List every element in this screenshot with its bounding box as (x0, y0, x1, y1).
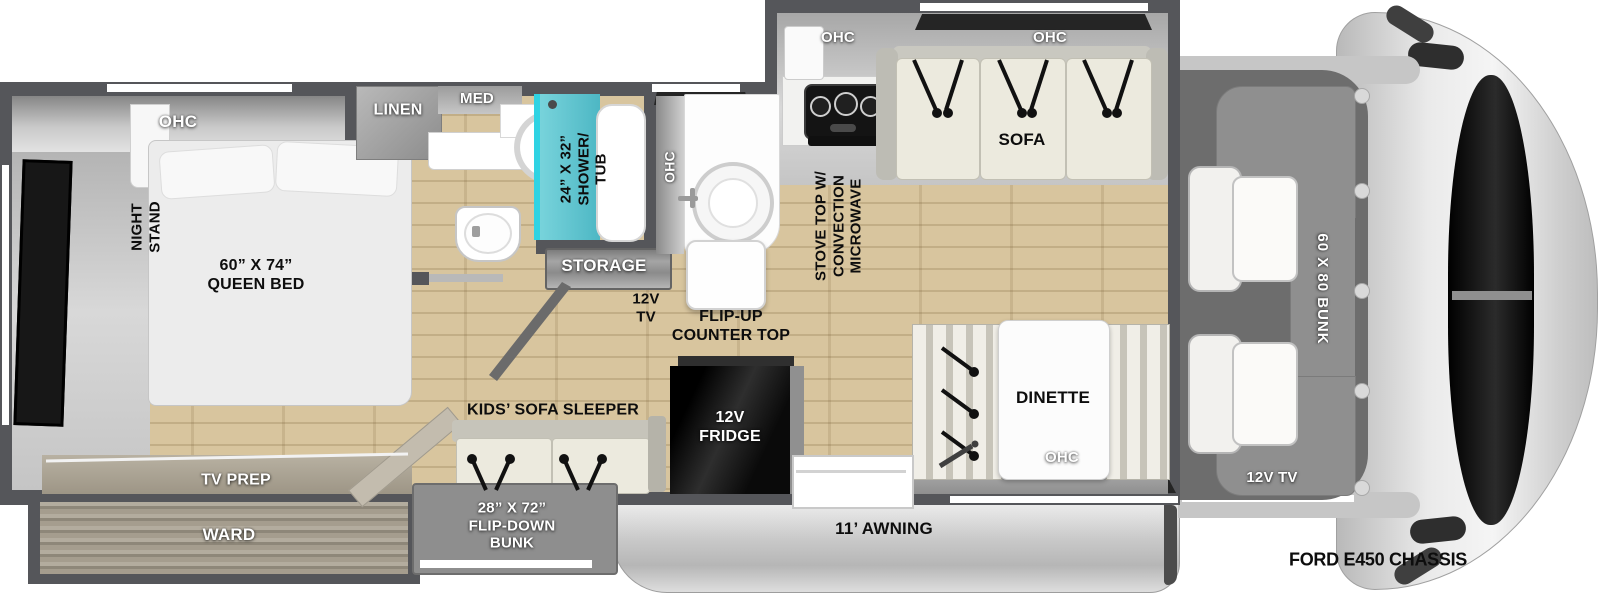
pillow (158, 144, 275, 200)
sofa-arm-left (876, 48, 898, 180)
tv-prep-label: TV PREP (201, 472, 271, 491)
rivet-icon (1354, 88, 1370, 104)
dinette-ohc-label: OHC (1045, 449, 1079, 467)
med-label: MED (460, 90, 494, 108)
bedroom-left-window (2, 165, 9, 425)
cab-seat-cushion-1 (1232, 176, 1298, 282)
ward-label: WARD (203, 525, 256, 545)
sofa-cushion (896, 58, 980, 180)
chassis-label: FORD E450 CHASSIS (1289, 549, 1467, 570)
night-stand-label: NIGHT STAND (128, 201, 163, 253)
shower-head-icon (548, 100, 557, 109)
cab-tv-label: 12V TV (1246, 469, 1297, 487)
kitchen-faucet-icon (690, 188, 695, 208)
dinette-label: DINETTE (1016, 388, 1090, 408)
dinette-bench-right (1106, 324, 1170, 480)
toilet-flush-icon (472, 226, 480, 237)
kids-sofa-label: KIDS’ SOFA SLEEPER (467, 402, 639, 421)
windshield-divider (1452, 291, 1532, 300)
sofa-cushion (980, 58, 1066, 180)
sofa-slide-wedge-icon (915, 14, 1152, 30)
stove-ohc-cabinet (784, 26, 824, 80)
tv-12v-label: 12V TV (632, 290, 659, 325)
burner-icon (834, 92, 858, 116)
stove-ohc-label: OHC (821, 29, 855, 47)
storage-label: STORAGE (561, 256, 646, 276)
shower-tub-label: 24” X 32” SHOWER/ TUB (557, 109, 610, 229)
bedroom-window (107, 84, 292, 92)
kitchen-sink-bowl (708, 178, 758, 228)
linen-label: LINEN (374, 102, 423, 121)
rivet-icon (1354, 183, 1370, 199)
awning (612, 503, 1180, 593)
sofa-label: SOFA (998, 130, 1045, 150)
rv-floorplan: OHC NIGHT STAND 60” X 74” QUEEN BED TV P… (0, 0, 1600, 601)
stove-control-icon (830, 124, 856, 132)
sofa-cushion (1066, 58, 1152, 180)
entry-step (792, 455, 914, 509)
sofa-ohc-label: OHC (1033, 29, 1067, 47)
kitchen-faucet-icon (678, 196, 698, 201)
awning-label: 11’ AWNING (835, 519, 933, 539)
bath-pocket-door (429, 274, 503, 282)
entry-step-edge (796, 470, 906, 473)
fridge-label: 12V FRIDGE (699, 409, 761, 447)
flip-down-bunk-trim (420, 560, 592, 568)
burner-icon (810, 96, 831, 117)
bedroom-tv (13, 159, 72, 427)
flip-down-bunk-label: 28” X 72” FLIP-DOWN BUNK (469, 499, 556, 552)
queen-bed-label: 60” X 74” QUEEN BED (208, 257, 305, 295)
kitchen-ohc-label: OHC (662, 151, 679, 183)
stove-label: STOVE TOP W/ CONVECTION MICROWAVE (812, 139, 865, 314)
rivet-icon (1354, 283, 1370, 299)
dinette-window (950, 496, 1178, 503)
windshield (1448, 75, 1534, 525)
cab-seat-cushion-2 (1232, 342, 1298, 446)
kitchen-window (652, 84, 740, 92)
awning-end-cap (1164, 505, 1177, 585)
flip-up-counter (686, 240, 766, 310)
dinette-bench-left (912, 324, 1002, 480)
shower-glass-edge (534, 94, 540, 240)
rivet-icon (1354, 383, 1370, 399)
rivet-icon (1354, 480, 1370, 496)
wall-slide-left (765, 0, 777, 96)
cabover-bunk-label: 60 X 80 BUNK (1313, 209, 1331, 369)
flip-up-counter-label: FLIP-UP COUNTER TOP (672, 308, 790, 346)
bedroom-ohc-label: OHC (159, 112, 197, 132)
sofa-slide-window (920, 3, 1148, 11)
kids-sofa-arm (648, 416, 666, 492)
